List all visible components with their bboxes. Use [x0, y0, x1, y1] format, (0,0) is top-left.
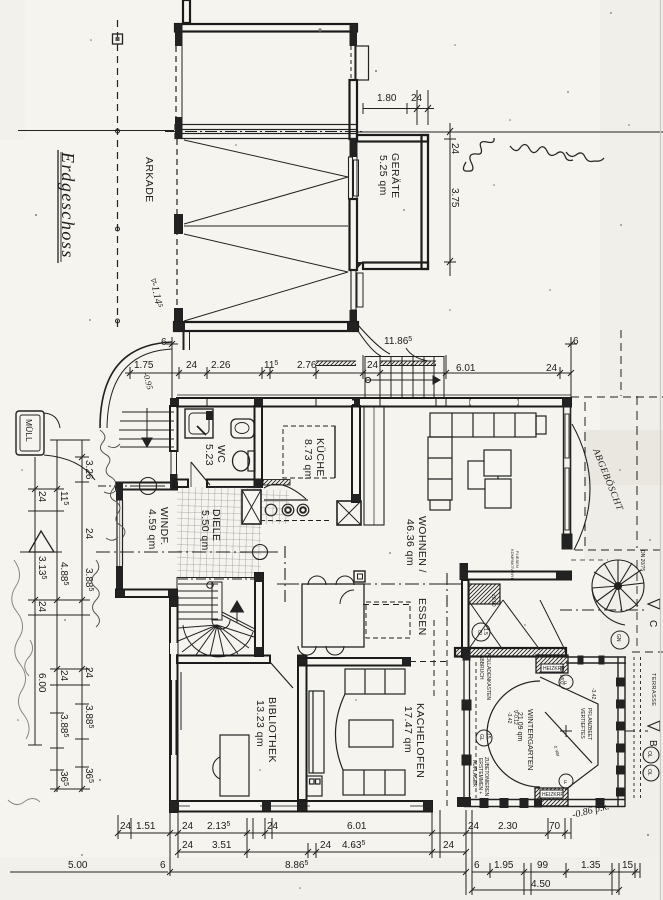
svg-text:3.51: 3.51 [212, 840, 232, 851]
svg-text:24: 24 [443, 840, 455, 851]
svg-text:5.00: 5.00 [68, 860, 88, 871]
svg-text:24: 24 [320, 840, 332, 851]
svg-text:-3.42: -3.42 [506, 712, 512, 724]
svg-text:24: 24 [83, 667, 94, 679]
svg-text:1.95: 1.95 [494, 860, 514, 871]
svg-text:OL: OL [646, 751, 652, 758]
svg-text:1.51: 1.51 [136, 821, 156, 832]
svg-text:1.35: 1.35 [581, 860, 601, 871]
svg-text:WC: WC [215, 445, 227, 463]
svg-text:5.23: 5.23 [203, 444, 215, 466]
svg-text:2.76: 2.76 [297, 360, 317, 371]
svg-text:8.73 qm: 8.73 qm [302, 439, 314, 480]
svg-text:2.26: 2.26 [211, 360, 231, 371]
svg-text:KACHELOFEN: KACHELOFEN [414, 703, 426, 778]
svg-text:24: 24 [83, 528, 94, 540]
svg-text:GERÄTE: GERÄTE [389, 153, 401, 199]
svg-text:GL: GL [478, 734, 484, 741]
svg-text:ARKADE: ARKADE [143, 157, 155, 203]
svg-text:PFLANZBEET: PFLANZBEET [586, 708, 592, 740]
svg-text:MÜLL: MÜLL [24, 419, 34, 442]
svg-text:ERSTEMMEN +: ERSTEMMEN + [477, 758, 483, 794]
svg-text:1.5: 1.5 [482, 628, 488, 635]
svg-text:DN 20/75: DN 20/75 [639, 550, 645, 571]
svg-text:2.30: 2.30 [498, 821, 518, 832]
svg-text:MK M02: MK M02 [558, 666, 564, 685]
svg-text:5.25 qm: 5.25 qm [377, 155, 389, 196]
svg-text:24: 24 [449, 143, 460, 155]
svg-text:∇-0.12: ∇-0.12 [512, 709, 518, 725]
svg-text:BIBLIOTHEK: BIBLIOTHEK [266, 697, 278, 763]
svg-text:24: 24 [58, 670, 69, 682]
svg-text:24: 24 [36, 491, 47, 503]
svg-text:ESSEN: ESSEN [416, 598, 428, 636]
svg-text:3.26: 3.26 [83, 460, 94, 480]
svg-text:4.50: 4.50 [531, 879, 551, 890]
svg-text:6.00: 6.00 [36, 673, 47, 693]
svg-text:GN: GN [615, 634, 621, 642]
svg-text:4.59 qm: 4.59 qm [146, 509, 158, 550]
svg-text:24: 24 [186, 360, 198, 371]
svg-text:70: 70 [549, 821, 561, 832]
svg-text:24: 24 [120, 821, 132, 832]
svg-text:6: 6 [573, 336, 579, 347]
svg-text:1.75: 1.75 [134, 360, 154, 371]
svg-text:15: 15 [622, 860, 634, 871]
svg-text:ZUBETONIEREN: ZUBETONIEREN [483, 757, 489, 796]
svg-text:24: 24 [546, 363, 558, 374]
svg-text:1.80: 1.80 [377, 93, 397, 104]
svg-text:6: 6 [474, 860, 480, 871]
svg-text:F: F [564, 780, 567, 786]
svg-text:GL: GL [476, 630, 482, 637]
svg-text:24: 24 [182, 821, 194, 832]
svg-text:±0.00: ±0.00 [490, 594, 496, 607]
svg-text:3.75: 3.75 [449, 188, 460, 208]
svg-text:99: 99 [537, 860, 549, 871]
svg-text:TERRASSE: TERRASSE [650, 673, 656, 706]
svg-text:B: B [647, 740, 658, 747]
svg-text:24: 24 [267, 821, 279, 832]
svg-text:FLIESEN: FLIESEN [515, 551, 520, 568]
svg-text:WINDF.: WINDF. [158, 507, 170, 546]
svg-text:HEIZKRP: HEIZKRP [542, 792, 564, 798]
svg-text:ABBRUCH: ABBRUCH [478, 655, 484, 680]
svg-text:24: 24 [182, 840, 194, 851]
svg-text:WINTERGARTEN: WINTERGARTEN [526, 709, 535, 770]
svg-text:6.01: 6.01 [347, 821, 367, 832]
svg-text:C: C [647, 620, 658, 627]
svg-text:24: 24 [367, 360, 379, 371]
svg-text:WOHNEN /: WOHNEN / [416, 516, 428, 573]
svg-text:24: 24 [468, 821, 480, 832]
svg-text:AUFLAGER: AUFLAGER [471, 760, 477, 787]
svg-text:11.865: 11.865 [384, 336, 412, 347]
svg-text:OL: OL [646, 769, 652, 776]
svg-text:5.50 qm: 5.50 qm [199, 510, 211, 551]
svg-text:VERTIEFTES: VERTIEFTES [579, 708, 585, 739]
svg-text:KÜCHE: KÜCHE [314, 438, 326, 477]
svg-text:46.36 qm: 46.36 qm [404, 519, 416, 566]
svg-text:ROLLADENKASTEN: ROLLADENKASTEN [485, 653, 491, 700]
svg-text:24: 24 [36, 601, 47, 613]
svg-text:6: 6 [160, 860, 166, 871]
svg-text:-3.42: -3.42 [590, 688, 596, 700]
svg-text:KOMPAKTVINYL: KOMPAKTVINYL [510, 549, 515, 581]
svg-text:6.01: 6.01 [456, 363, 476, 374]
svg-text:17.47 qm: 17.47 qm [402, 706, 414, 753]
svg-text:13.23 qm: 13.23 qm [254, 700, 266, 747]
svg-text:15: 15 [485, 733, 491, 739]
